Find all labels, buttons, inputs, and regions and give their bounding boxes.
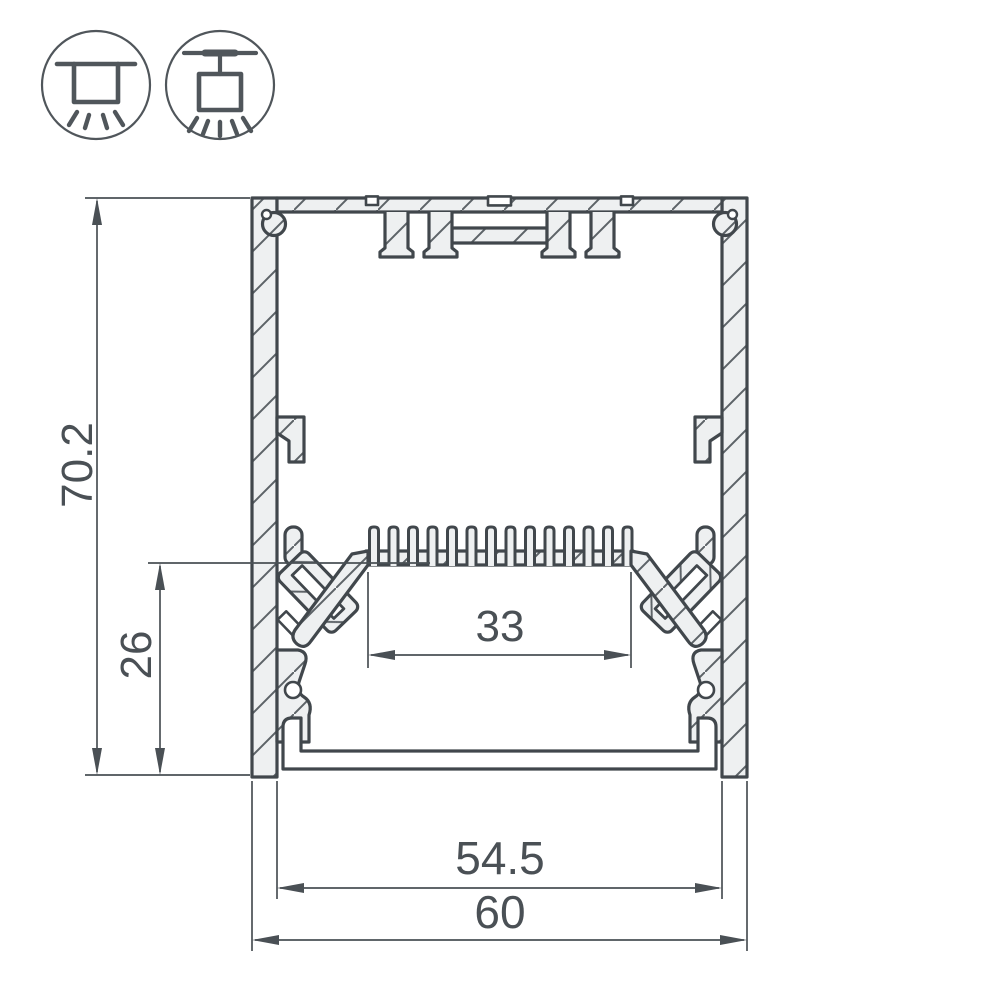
right-wall bbox=[722, 198, 747, 777]
label-overall-width: 60 bbox=[474, 886, 525, 938]
top-center-slot bbox=[488, 196, 511, 205]
top-recess-void bbox=[453, 214, 546, 229]
recess-floor-plate bbox=[452, 228, 547, 243]
label-inner-width: 54.5 bbox=[455, 832, 545, 884]
label-chamber-height: 26 bbox=[112, 631, 161, 680]
left-wall bbox=[252, 198, 277, 777]
led-profile-cross-section-drawing: 70.2 26 33 54.5 60 bbox=[0, 0, 1000, 1000]
label-overall-height: 70.2 bbox=[53, 422, 102, 508]
label-led-shelf-width: 33 bbox=[476, 602, 525, 651]
technical-drawing-page: 70.2 26 33 54.5 60 bbox=[0, 0, 1000, 1000]
